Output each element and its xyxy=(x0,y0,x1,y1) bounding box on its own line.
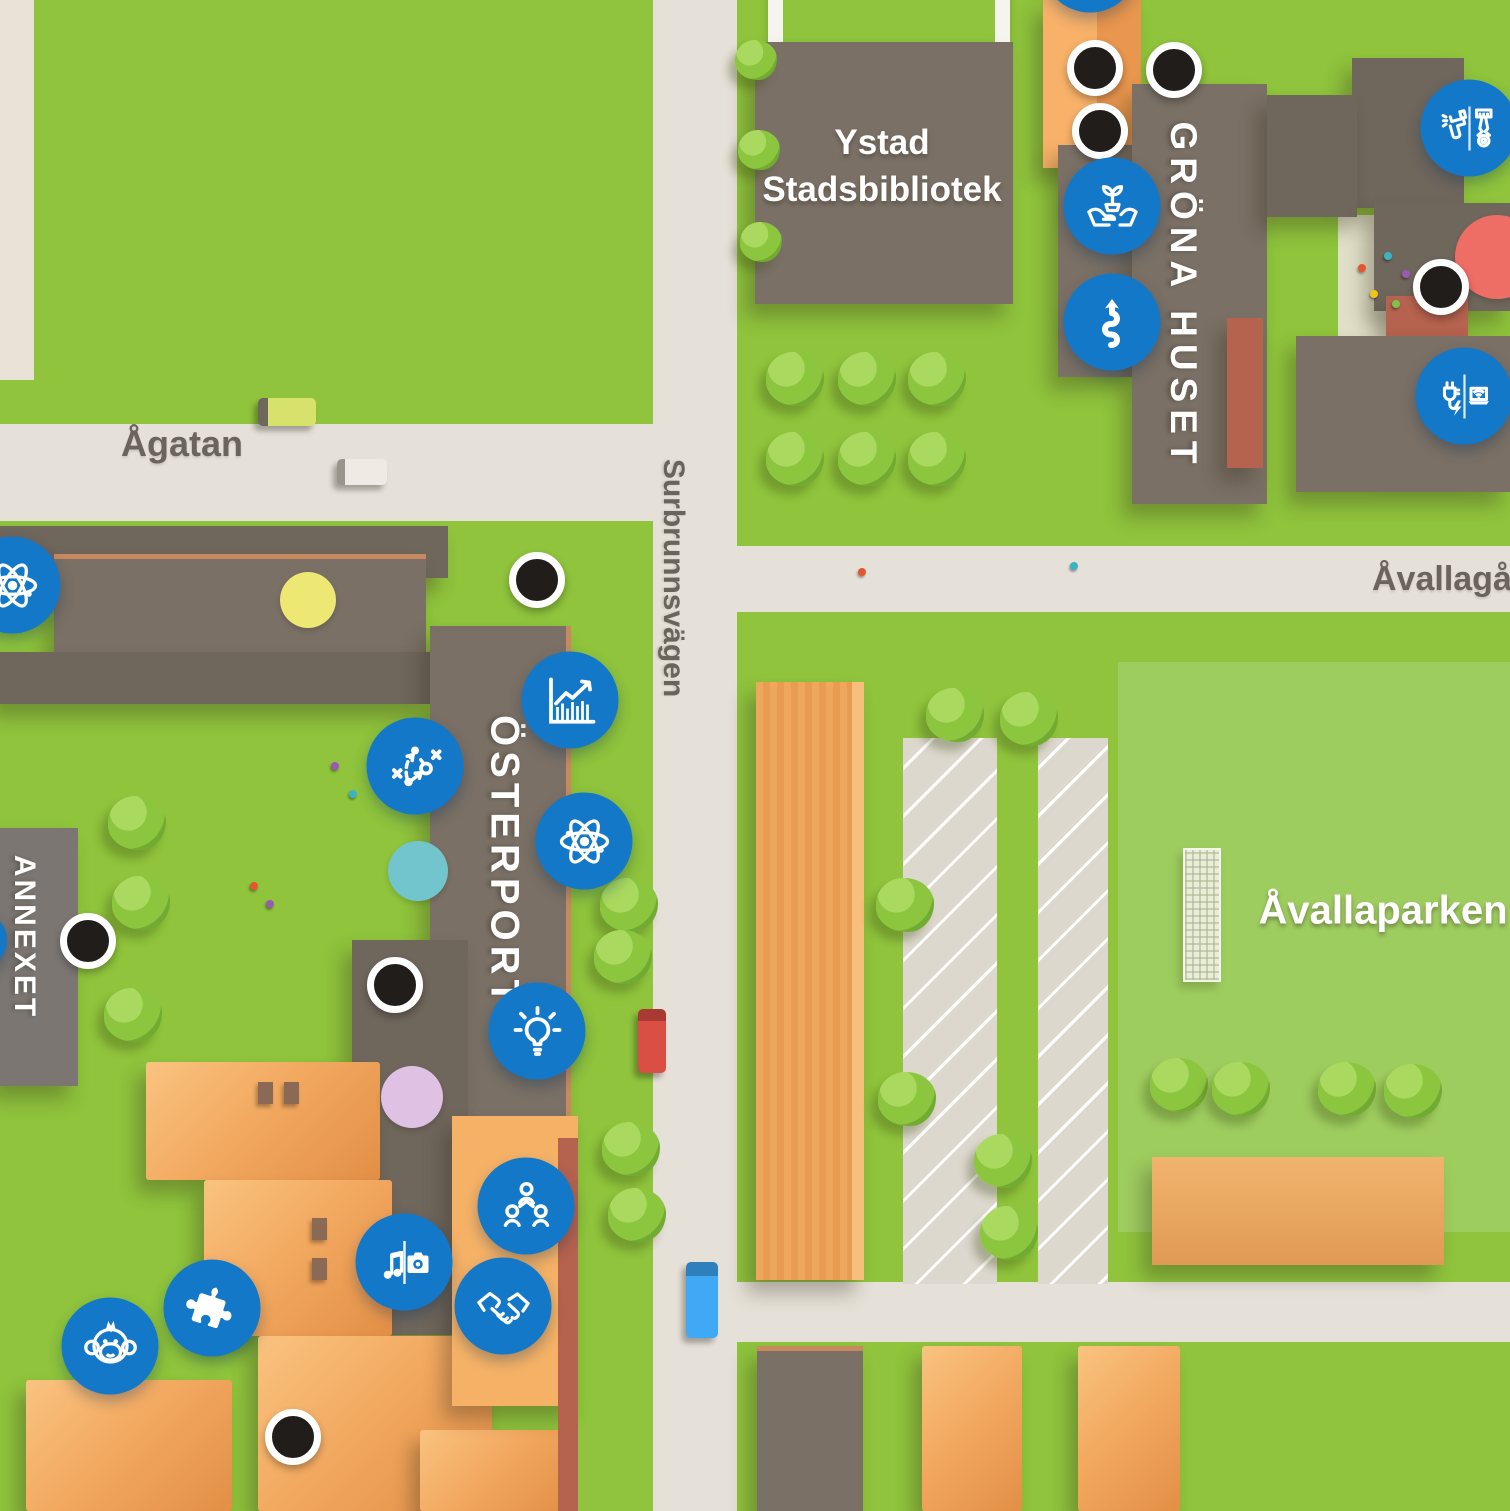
street-label-surbrunnsvagen: Surbrunnsvägen xyxy=(656,459,690,697)
person-figure xyxy=(858,568,866,576)
monkey-icon xyxy=(80,1316,140,1376)
poi-music-media[interactable] xyxy=(356,1214,453,1311)
street-label-agatan: Ågatan xyxy=(121,423,243,465)
lightbulb-icon xyxy=(507,1001,567,1061)
map-edge-strip xyxy=(0,0,34,380)
atom-icon xyxy=(554,811,614,871)
location-dot-marker[interactable] xyxy=(509,552,565,608)
atom-icon xyxy=(0,555,42,615)
tree xyxy=(600,878,658,932)
person-figure xyxy=(1370,290,1378,298)
tree xyxy=(735,40,777,80)
chimney xyxy=(284,1082,299,1104)
building-south-orange xyxy=(1078,1346,1180,1511)
building-south-orange xyxy=(922,1346,1022,1511)
music-camera-icon xyxy=(374,1232,434,1292)
pink-spot-marker[interactable] xyxy=(381,1066,443,1128)
building-tall-orange xyxy=(756,682,864,1280)
tree xyxy=(740,222,782,262)
location-dot-marker[interactable] xyxy=(367,957,423,1013)
park-building xyxy=(1152,1157,1444,1265)
tree xyxy=(974,1134,1032,1188)
plant-hands-icon xyxy=(1082,176,1142,236)
tree xyxy=(980,1206,1038,1260)
label-avallaparken: Åvallaparken xyxy=(1258,889,1507,934)
street-label-avallagangen: Åvallagången xyxy=(1372,560,1510,599)
tree xyxy=(1150,1058,1208,1112)
poi-science-east[interactable] xyxy=(536,793,633,890)
label-annexet: ANNEXET xyxy=(7,855,41,1019)
location-dot-marker[interactable] xyxy=(1413,259,1469,315)
location-dot-marker[interactable] xyxy=(265,1409,321,1465)
building-grona-east-wing xyxy=(1267,95,1357,217)
school-wing-south-2 xyxy=(420,1430,570,1511)
person-figure xyxy=(1358,264,1366,272)
handshake-icon xyxy=(473,1276,533,1336)
tree xyxy=(908,432,966,486)
tree xyxy=(104,988,162,1042)
parking-strip xyxy=(1038,738,1108,1284)
tree xyxy=(1000,692,1058,746)
poi-puzzle[interactable] xyxy=(164,1260,261,1357)
tree xyxy=(838,352,896,406)
winding-arrow-icon xyxy=(1082,292,1142,352)
person-figure xyxy=(250,882,258,890)
people-group-icon xyxy=(496,1176,556,1236)
street-agatan xyxy=(0,424,657,521)
poi-strategy[interactable] xyxy=(367,718,464,815)
location-dot-marker[interactable] xyxy=(60,913,116,969)
yellow-spot-marker[interactable] xyxy=(280,572,336,628)
poi-idea[interactable] xyxy=(489,983,586,1080)
label-library-line1: Ystad xyxy=(834,123,929,162)
poi-economics[interactable] xyxy=(522,652,619,749)
person-figure xyxy=(1402,270,1410,278)
car xyxy=(258,398,316,426)
poi-monkey[interactable] xyxy=(62,1298,159,1395)
tree xyxy=(112,876,170,930)
tree xyxy=(594,930,652,984)
car xyxy=(686,1262,718,1338)
tree xyxy=(908,352,966,406)
label-grona-huset: GRÖNA HUSET xyxy=(1162,121,1204,470)
label-library: YstadStadsbibliotek xyxy=(762,119,1001,214)
building-west-bar-south xyxy=(0,652,430,704)
label-osterport: ÖSTERPORT xyxy=(482,715,527,1009)
person-figure xyxy=(266,900,274,908)
tree xyxy=(926,688,984,742)
person-figure xyxy=(331,762,339,770)
tactics-icon xyxy=(385,736,445,796)
tree xyxy=(1212,1062,1270,1116)
person-figure xyxy=(1392,300,1400,308)
chimney xyxy=(258,1082,273,1104)
poi-cooperation[interactable] xyxy=(455,1258,552,1355)
person-figure xyxy=(1384,252,1392,260)
person-figure xyxy=(349,790,357,798)
car xyxy=(638,1009,666,1073)
tree xyxy=(766,432,824,486)
poi-vehicle[interactable] xyxy=(1421,80,1510,177)
tree xyxy=(1318,1062,1376,1116)
plug-laptop-icon xyxy=(1434,366,1494,426)
chimney xyxy=(312,1218,327,1240)
tree xyxy=(602,1122,660,1176)
parking-strip xyxy=(903,738,997,1284)
tree xyxy=(878,1072,936,1126)
tree xyxy=(838,432,896,486)
school-annex-west xyxy=(26,1380,232,1511)
street-south xyxy=(737,1282,1510,1342)
school-wing-north xyxy=(146,1062,380,1180)
tree xyxy=(876,878,934,932)
building-brick-tower xyxy=(1227,318,1263,468)
tree xyxy=(108,796,166,850)
car xyxy=(337,459,387,485)
location-dot-marker[interactable] xyxy=(1146,42,1202,98)
poi-sustainability[interactable] xyxy=(1064,158,1161,255)
tree xyxy=(608,1188,666,1242)
poi-route[interactable] xyxy=(1064,274,1161,371)
campus-map: Ågatan Surbrunnsvägen Åvallagången Ystad… xyxy=(0,0,1510,1511)
poi-power-it[interactable] xyxy=(1416,348,1510,445)
bar-chart-icon xyxy=(540,670,600,730)
avallaparken-area xyxy=(1118,662,1510,1232)
chimney xyxy=(312,1258,327,1280)
tree xyxy=(766,352,824,406)
label-library-line2: Stadsbibliotek xyxy=(762,170,1001,209)
spray-gun-piston-icon xyxy=(1439,98,1499,158)
person-figure xyxy=(1070,562,1078,570)
building-west-bar-main xyxy=(54,554,426,667)
poi-organisation[interactable] xyxy=(478,1158,575,1255)
puzzle-icon xyxy=(182,1278,242,1338)
tree xyxy=(1384,1064,1442,1118)
building-south-brown xyxy=(757,1346,863,1511)
park-trellis xyxy=(1183,848,1221,982)
location-dot-marker[interactable] xyxy=(1072,103,1128,159)
teal-spot-marker[interactable] xyxy=(388,841,448,901)
location-dot-marker[interactable] xyxy=(1067,40,1123,96)
